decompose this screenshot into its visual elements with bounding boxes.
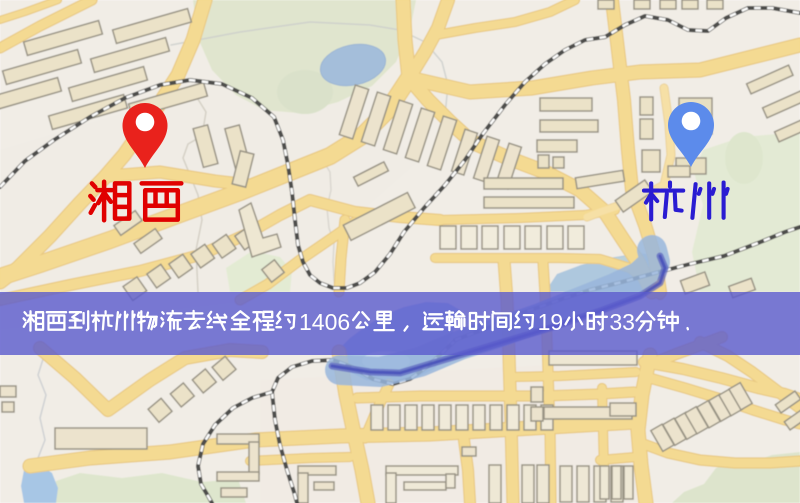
svg-text:33: 33 (609, 309, 635, 335)
svg-text:19: 19 (538, 309, 564, 335)
svg-text:1406: 1406 (299, 309, 350, 335)
